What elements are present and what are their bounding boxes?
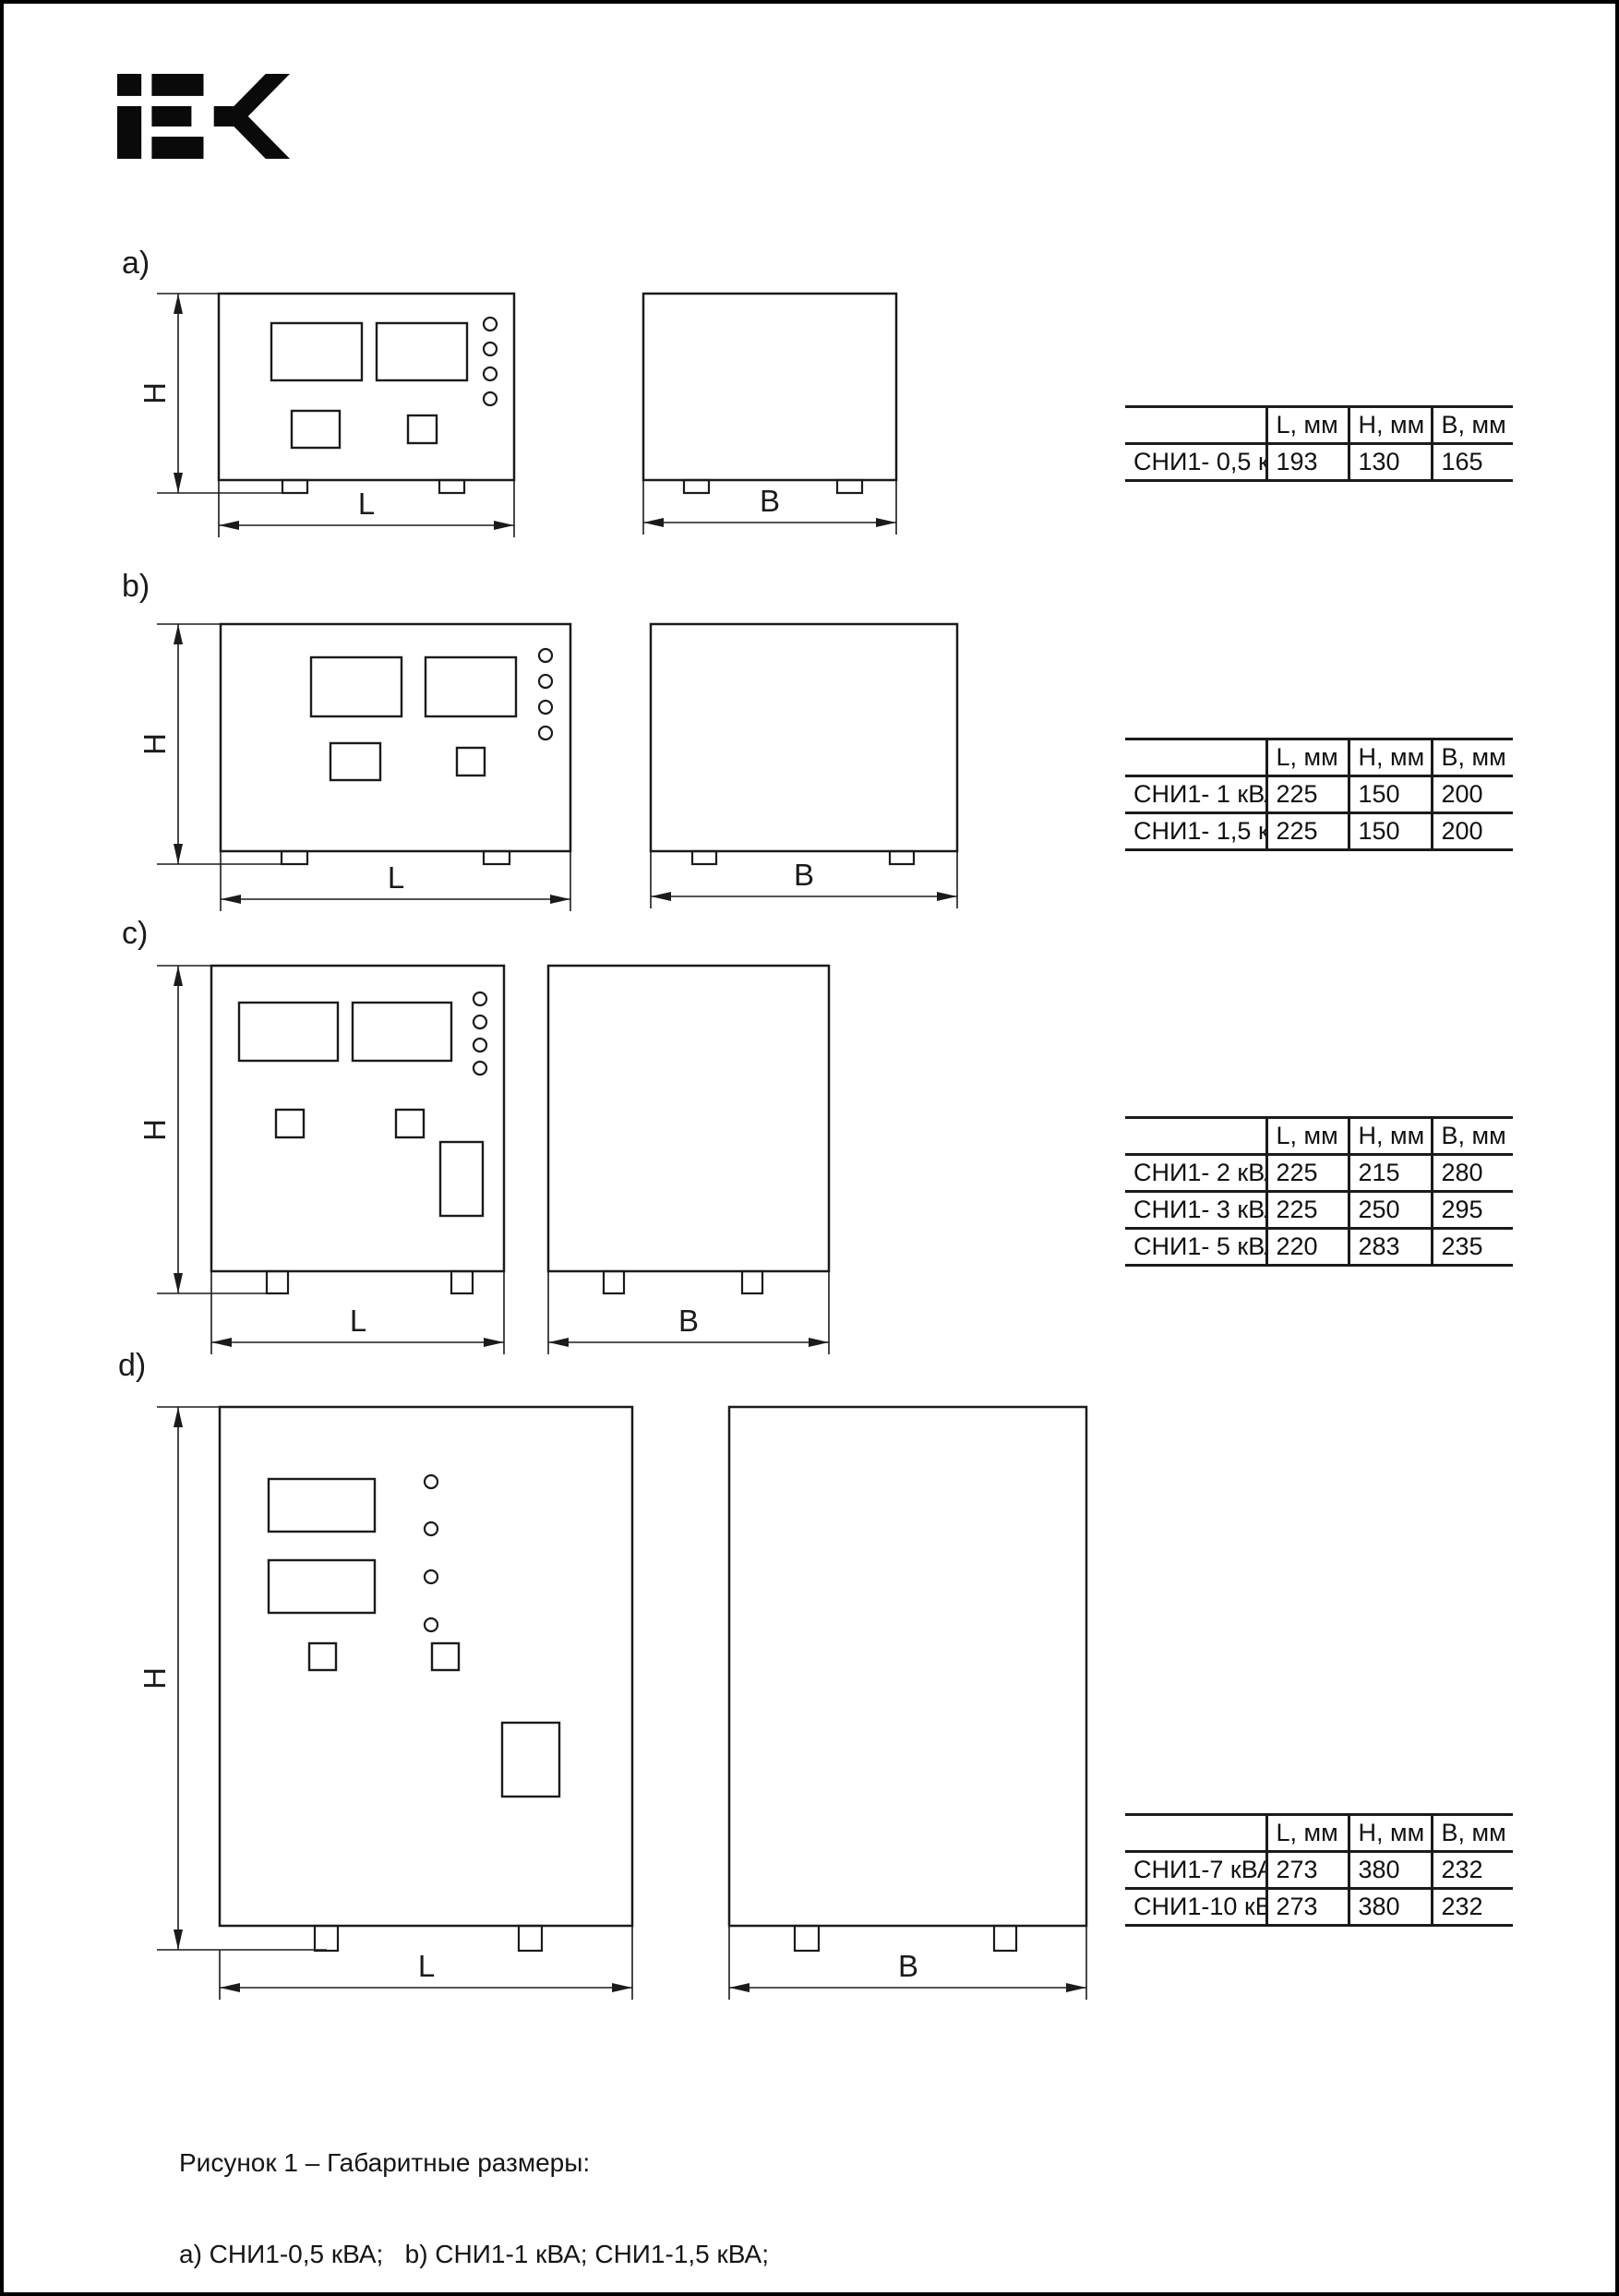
table-row: СНИ1- 2 кВА225215280: [1125, 1155, 1513, 1192]
value-cell: 273: [1266, 1852, 1349, 1889]
table-header-cell: H, мм: [1349, 1118, 1432, 1155]
dimension-b-d: B: [729, 1926, 1086, 2000]
foot: [837, 480, 862, 493]
table-header-cell: L, мм: [1266, 1118, 1349, 1155]
table-header-cell: [1125, 739, 1266, 776]
table-header-cell: L, мм: [1266, 407, 1349, 444]
dimension-b-c: B: [548, 1271, 829, 1354]
foot: [282, 480, 307, 493]
document-page: H L B: [0, 0, 1619, 2296]
dimension-l-c: L: [211, 1271, 504, 1354]
dim-label-h: H: [138, 1119, 172, 1141]
table-header-cell: B, мм: [1432, 407, 1513, 444]
dim-label-l: L: [418, 1949, 435, 1983]
dimension-h-b: H: [138, 624, 297, 864]
foot: [684, 480, 709, 493]
led-indicator: [484, 367, 497, 380]
switch: [396, 1110, 424, 1137]
dimensions-table: L, ммH, ммB, ммСНИ1-7 кВА273380232СНИ1-1…: [1125, 1813, 1513, 1927]
foot: [439, 480, 464, 493]
value-cell: 225: [1266, 1155, 1349, 1192]
led-indicator: [539, 675, 552, 688]
caption-line-1: Рисунок 1 – Габаритные размеры:: [179, 2147, 1051, 2178]
led-indicator: [474, 1039, 486, 1052]
display-window: [269, 1479, 375, 1532]
dimension-h-d: H: [138, 1407, 327, 1950]
side-view-c: [548, 966, 829, 1293]
value-cell: 273: [1266, 1889, 1349, 1926]
model-cell: СНИ1- 3 кВА: [1125, 1192, 1266, 1229]
table-header-cell: L, мм: [1266, 1815, 1349, 1852]
led-indicator: [425, 1475, 438, 1488]
foot: [890, 851, 914, 864]
switch: [276, 1110, 304, 1137]
figure-a: H L B: [138, 294, 896, 537]
figure-d: H L B: [138, 1407, 1086, 2000]
foot: [451, 1271, 473, 1293]
value-cell: 225: [1266, 1192, 1349, 1229]
dimensions-table-c: L, ммH, ммB, ммСНИ1- 2 кВА225215280СНИ1-…: [1125, 1116, 1513, 1267]
breaker-block: [440, 1142, 483, 1216]
value-cell: 150: [1349, 776, 1432, 813]
dimensions-table-a: L, ммH, ммB, ммСНИ1- 0,5 кВА193130165: [1125, 405, 1513, 482]
section-label-a: a): [122, 246, 150, 282]
dimensions-table-d: L, ммH, ммB, ммСНИ1-7 кВА273380232СНИ1-1…: [1125, 1813, 1513, 1927]
dimension-l-d: L: [220, 1926, 632, 2000]
figure-caption: Рисунок 1 – Габаритные размеры: a) СНИ1-…: [179, 2086, 1051, 2296]
table-header-cell: L, мм: [1266, 739, 1349, 776]
value-cell: 225: [1266, 776, 1349, 813]
value-cell: 380: [1349, 1889, 1432, 1926]
table-header-row: L, ммH, ммB, мм: [1125, 407, 1513, 444]
foot: [604, 1271, 624, 1293]
switch: [309, 1643, 336, 1670]
dimension-l-b: L: [221, 851, 570, 911]
dim-label-b: B: [760, 484, 780, 518]
led-indicator: [539, 701, 552, 714]
led-indicator: [484, 343, 497, 355]
led-indicator: [474, 1062, 486, 1075]
section-label-d: d): [118, 1348, 146, 1384]
dim-label-h: H: [138, 382, 172, 404]
caption-line-2: a) СНИ1-0,5 кВА; b) СНИ1-1 кВА; СНИ1-1,5…: [179, 2239, 1051, 2269]
section-label-c: c): [122, 916, 148, 952]
value-cell: 220: [1266, 1229, 1349, 1266]
led-indicator: [484, 392, 497, 405]
section-label-b: b): [122, 569, 150, 605]
foot: [519, 1926, 542, 1951]
switch: [457, 748, 485, 775]
value-cell: 232: [1432, 1889, 1513, 1926]
foot: [994, 1926, 1016, 1951]
front-view-a: [219, 294, 514, 493]
iek-logo: [117, 74, 290, 159]
display-window: [426, 657, 516, 716]
dim-label-b: B: [898, 1949, 918, 1983]
dim-label-h: H: [138, 1667, 172, 1689]
dimension-h-c: H: [138, 966, 281, 1293]
foot: [692, 851, 716, 864]
table-header-cell: [1125, 1815, 1266, 1852]
switch: [432, 1643, 459, 1670]
front-view-b: [221, 624, 570, 864]
led-indicator: [425, 1618, 438, 1631]
switch: [292, 411, 340, 448]
value-cell: 380: [1349, 1852, 1432, 1889]
display-window: [271, 323, 362, 380]
value-cell: 225: [1266, 813, 1349, 850]
led-indicator: [539, 649, 552, 662]
table-header-cell: H, мм: [1349, 407, 1432, 444]
switch: [330, 743, 380, 780]
value-cell: 165: [1432, 444, 1513, 481]
table-row: СНИ1-10 кВА273380232: [1125, 1889, 1513, 1926]
table-header-cell: B, мм: [1432, 1815, 1513, 1852]
side-view-b: [651, 624, 957, 864]
foot: [795, 1926, 819, 1951]
table-row: СНИ1- 0,5 кВА193130165: [1125, 444, 1513, 481]
value-cell: 200: [1432, 813, 1513, 850]
display-window: [377, 323, 467, 380]
dimensions-table: L, ммH, ммB, ммСНИ1- 1 кВА225150200СНИ1-…: [1125, 738, 1513, 851]
front-view-d: [220, 1407, 632, 1951]
table-header-row: L, ммH, ммB, мм: [1125, 1815, 1513, 1852]
led-indicator: [425, 1522, 438, 1535]
foot: [267, 1271, 288, 1293]
table-header-cell: [1125, 1118, 1266, 1155]
dim-label-l: L: [358, 487, 375, 521]
value-cell: 232: [1432, 1852, 1513, 1889]
table-header-row: L, ммH, ммB, мм: [1125, 739, 1513, 776]
table-header-cell: [1125, 407, 1266, 444]
table-row: СНИ1- 5 кВА220283235: [1125, 1229, 1513, 1266]
table-row: СНИ1- 3 кВА225250295: [1125, 1192, 1513, 1229]
figure-c: H L B: [138, 966, 829, 1354]
foot: [484, 851, 510, 864]
model-cell: СНИ1- 0,5 кВА: [1125, 444, 1266, 481]
dim-label-h: H: [138, 733, 172, 755]
table-row: СНИ1-7 кВА273380232: [1125, 1852, 1513, 1889]
table-row: СНИ1- 1 кВА225150200: [1125, 776, 1513, 813]
display-window: [269, 1560, 375, 1613]
table-row: СНИ1- 1,5 кВА225150200: [1125, 813, 1513, 850]
value-cell: 150: [1349, 813, 1432, 850]
led-indicator: [474, 992, 486, 1005]
model-cell: СНИ1- 5 кВА: [1125, 1229, 1266, 1266]
value-cell: 130: [1349, 444, 1432, 481]
side-view-a: [643, 294, 896, 493]
dim-label-b: B: [678, 1304, 699, 1338]
switch: [408, 415, 437, 443]
side-view-d: [729, 1407, 1086, 1951]
model-cell: СНИ1- 1,5 кВА: [1125, 813, 1266, 850]
foot: [282, 851, 307, 864]
model-cell: СНИ1- 2 кВА: [1125, 1155, 1266, 1192]
model-cell: СНИ1- 1 кВА: [1125, 776, 1266, 813]
table-header-cell: H, мм: [1349, 739, 1432, 776]
model-cell: СНИ1-7 кВА: [1125, 1852, 1266, 1889]
model-cell: СНИ1-10 кВА: [1125, 1889, 1266, 1926]
value-cell: 295: [1432, 1192, 1513, 1229]
dimensions-table: L, ммH, ммB, ммСНИ1- 0,5 кВА193130165: [1125, 405, 1513, 482]
front-view-c: [211, 966, 504, 1293]
display-window: [239, 1003, 338, 1061]
value-cell: 215: [1349, 1155, 1432, 1192]
dim-label-b: B: [794, 858, 814, 892]
dimension-b-a: B: [643, 480, 896, 535]
table-header-cell: B, мм: [1432, 739, 1513, 776]
dim-label-l: L: [388, 860, 404, 895]
display-window: [353, 1003, 451, 1061]
foot: [315, 1926, 338, 1951]
value-cell: 200: [1432, 776, 1513, 813]
value-cell: 280: [1432, 1155, 1513, 1192]
display-window: [311, 657, 402, 716]
led-indicator: [425, 1570, 438, 1583]
value-cell: 283: [1349, 1229, 1432, 1266]
value-cell: 193: [1266, 444, 1349, 481]
led-indicator: [474, 1016, 486, 1028]
dimensions-table: L, ммH, ммB, ммСНИ1- 2 кВА225215280СНИ1-…: [1125, 1116, 1513, 1267]
table-header-row: L, ммH, ммB, мм: [1125, 1118, 1513, 1155]
table-header-cell: H, мм: [1349, 1815, 1432, 1852]
dim-label-l: L: [350, 1304, 366, 1338]
foot: [742, 1271, 762, 1293]
dimensions-table-b: L, ммH, ммB, ммСНИ1- 1 кВА225150200СНИ1-…: [1125, 738, 1513, 851]
led-indicator: [539, 727, 552, 739]
figure-b: H L B: [138, 624, 957, 911]
led-indicator: [484, 318, 497, 331]
table-header-cell: B, мм: [1432, 1118, 1513, 1155]
dimension-b-b: B: [651, 851, 957, 908]
value-cell: 250: [1349, 1192, 1432, 1229]
value-cell: 235: [1432, 1229, 1513, 1266]
breaker-block: [502, 1723, 559, 1797]
dimension-l-a: L: [219, 480, 514, 537]
